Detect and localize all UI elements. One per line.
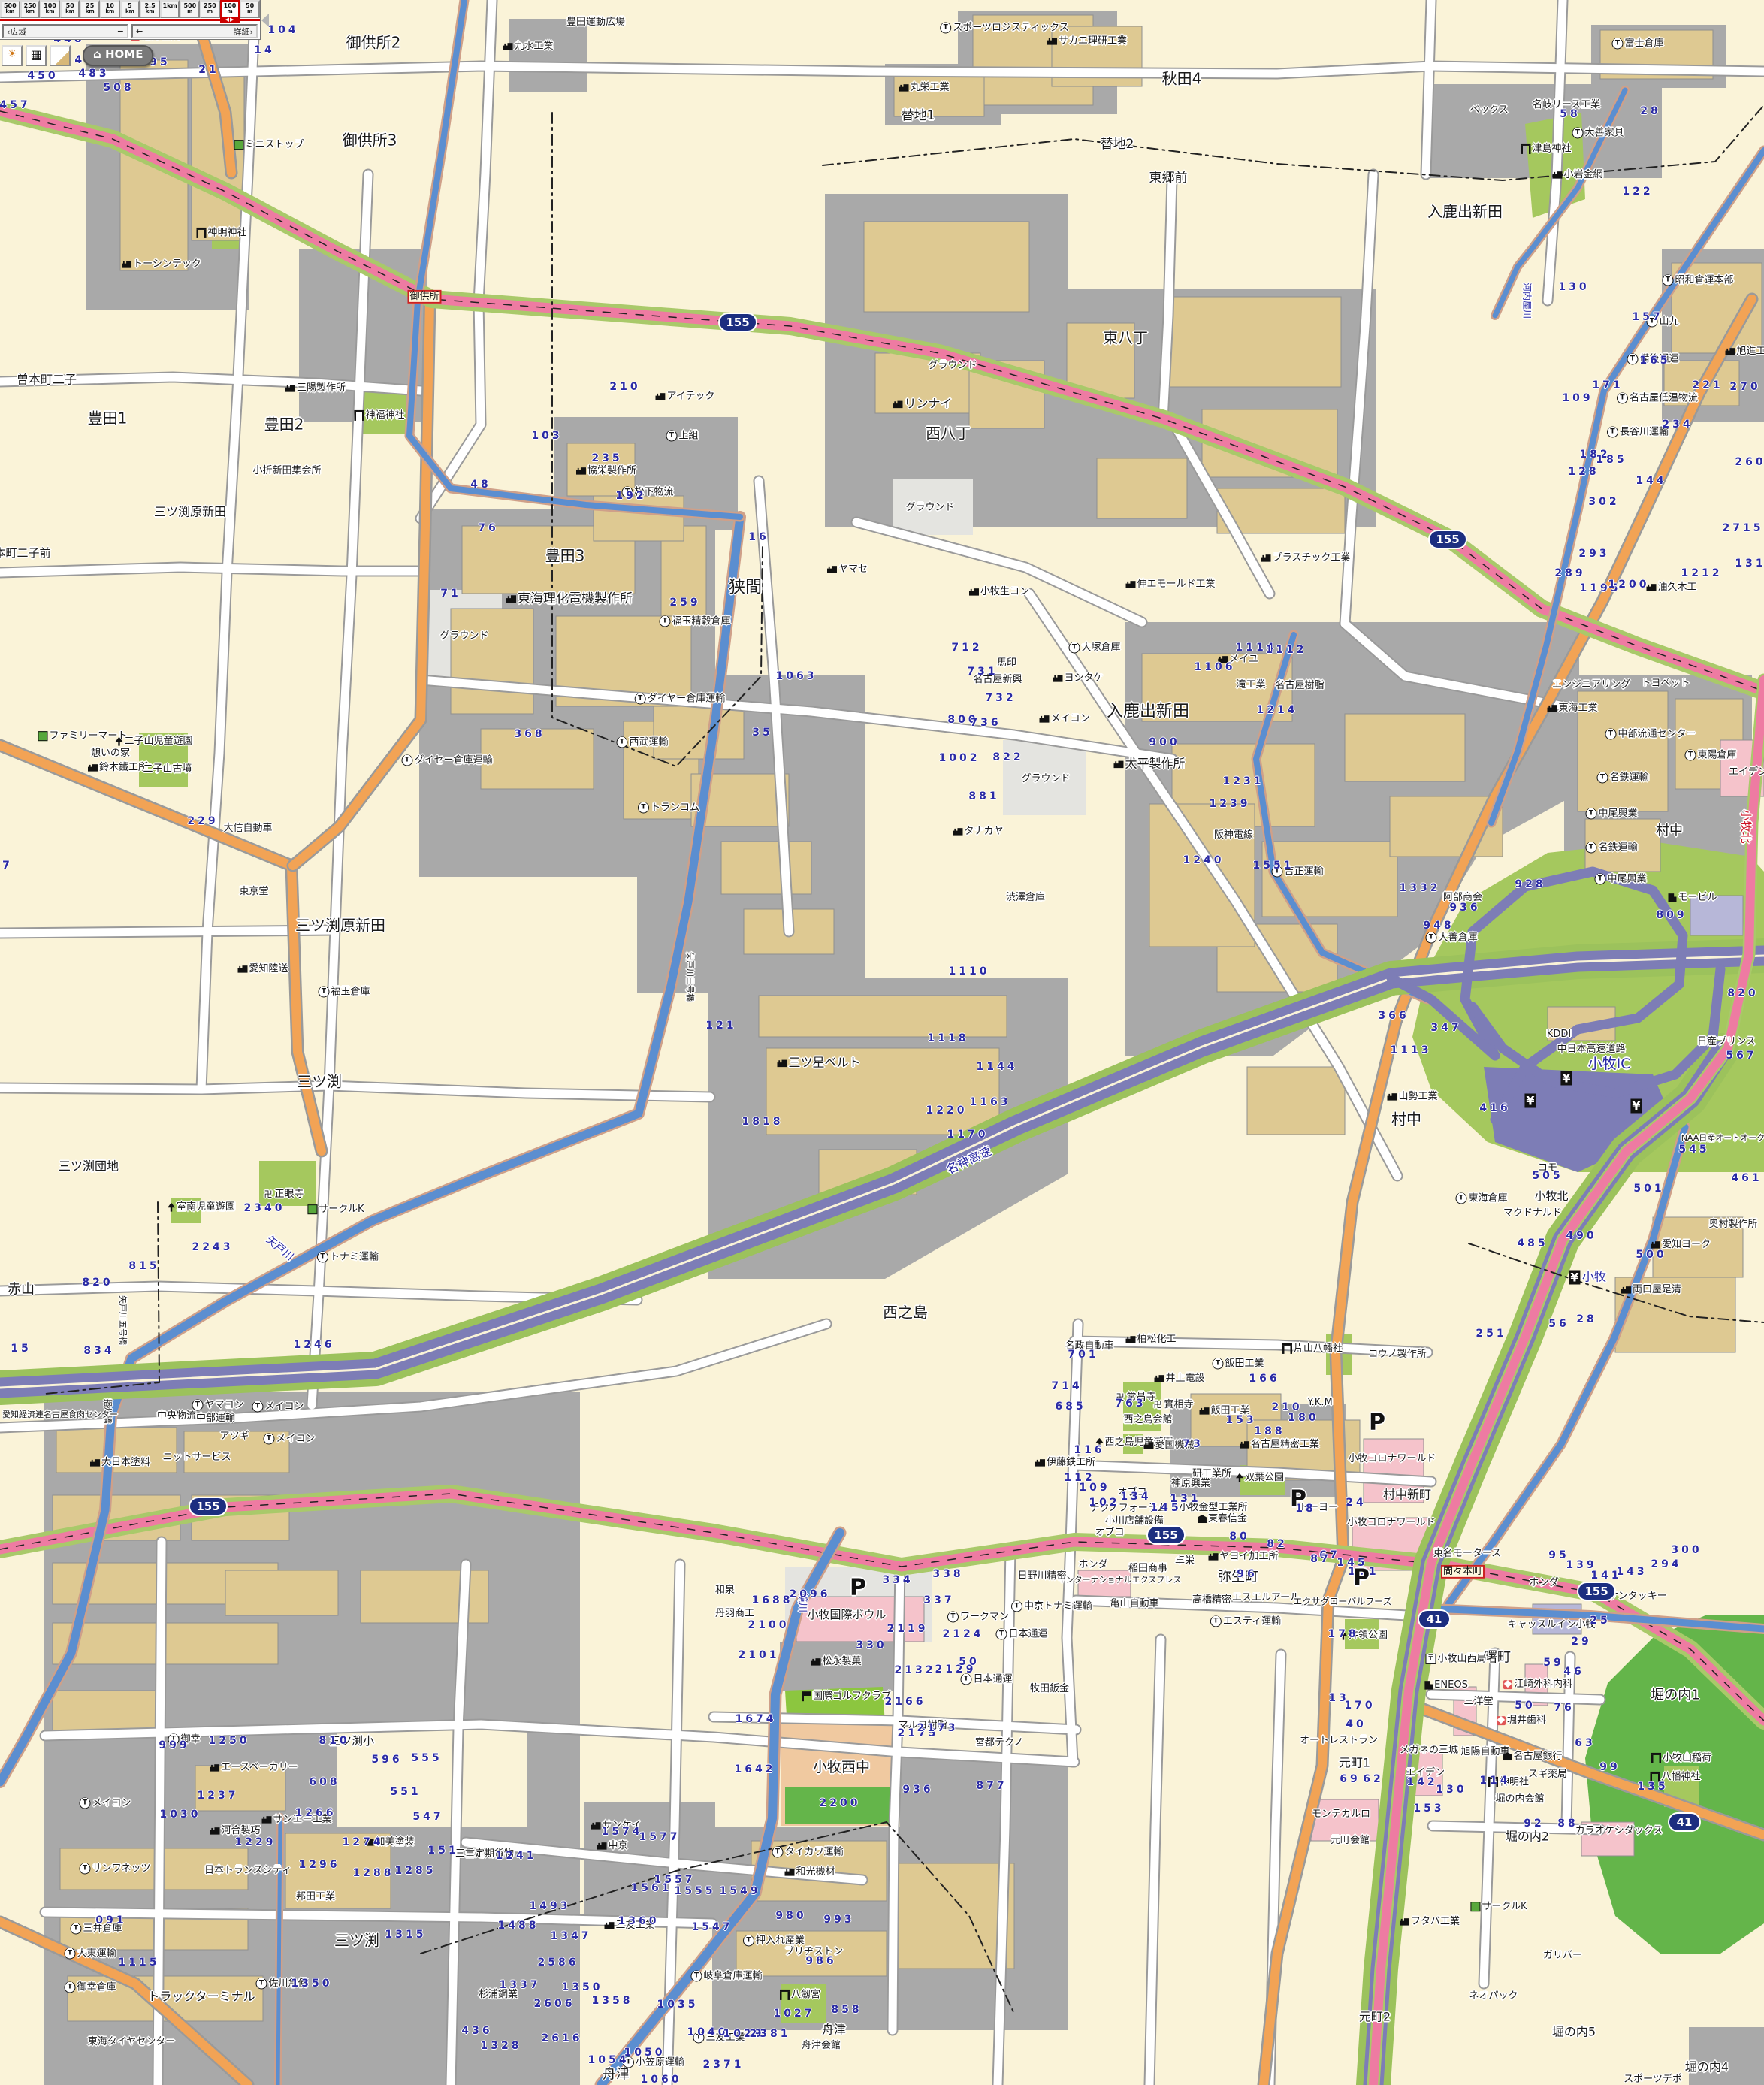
- lot-number: 59: [1543, 1657, 1563, 1669]
- map-label: 双葉公園: [1236, 1473, 1284, 1483]
- bk-icon: [1503, 1752, 1512, 1760]
- map-label: Tダイヤー倉庫運輸: [635, 693, 726, 705]
- lot-number: 1063: [776, 670, 817, 682]
- lot-number: 2586: [538, 1957, 579, 1969]
- t-icon: T: [659, 616, 670, 627]
- scale-button-50m[interactable]: 50m: [240, 0, 260, 18]
- lot-number: 234: [1662, 419, 1693, 431]
- h-icon: +: [1503, 1680, 1512, 1689]
- lot-number: 999: [159, 1739, 189, 1751]
- lot-number: 130: [1436, 1784, 1466, 1796]
- map-label: 村中新町: [1383, 1489, 1431, 1502]
- map-label: 奥村製作所: [1708, 1219, 1757, 1230]
- t-icon: T: [1596, 772, 1608, 784]
- map-label-layer: 御供所2御供所3豊田1豊田2豊田3狭間曽本町二子本町二子前西八丁東八丁入鹿出新田…: [0, 0, 1764, 2085]
- f-icon: [1125, 581, 1135, 588]
- f-icon: [210, 1764, 219, 1772]
- t-icon: T: [64, 1948, 75, 1960]
- scale-button-250km[interactable]: 250km: [20, 0, 41, 18]
- map-label: T中尾興業: [1594, 874, 1646, 885]
- map-label: エースベーカリー: [210, 1763, 298, 1773]
- lot-number: 881: [968, 790, 999, 802]
- m-icon: 卍: [1153, 1401, 1162, 1410]
- map-label: 大日本塗料: [90, 1458, 150, 1468]
- lot-number: 416: [1479, 1102, 1510, 1114]
- lot-number: 188: [1254, 1425, 1285, 1437]
- tollgate-mark: ¥: [1560, 1071, 1572, 1086]
- map-label: 入鹿出新田: [1107, 703, 1189, 720]
- lot-number: 1296: [299, 1859, 340, 1871]
- map-label: NAA日産オートオークション: [1681, 1134, 1764, 1143]
- lot-number: 986: [805, 1955, 836, 1967]
- cv-icon: [307, 1204, 317, 1214]
- lot-number: 1112: [1266, 644, 1307, 656]
- lot-number: 14: [254, 44, 274, 56]
- map-label: 小牧北: [1739, 809, 1751, 843]
- scale-button-5km[interactable]: 5km: [120, 0, 140, 18]
- lot-number: 1163: [970, 1096, 1011, 1108]
- map-label: 入鹿出新田: [1427, 204, 1503, 220]
- lot-number: 130: [1558, 281, 1589, 293]
- map-label: エンジニアリング: [1552, 680, 1630, 690]
- map-label: 堀の内4: [1685, 2062, 1729, 2074]
- map-label: エクサグローバルフーズ: [1293, 1597, 1391, 1607]
- lot-number: 1688: [752, 1594, 793, 1606]
- map-label: T大塚倉庫: [1068, 642, 1120, 654]
- map-label: 三ツ渕原新田: [154, 506, 226, 519]
- map-label: +江崎外科内科: [1503, 1679, 1572, 1690]
- lot-number: 24: [1346, 1497, 1366, 1509]
- lot-number: 1110: [949, 965, 990, 978]
- map-label: スギ薬局: [1528, 1769, 1567, 1780]
- h-icon: +: [1497, 1716, 1506, 1725]
- t-icon: T: [1425, 932, 1436, 944]
- map-label: 狭間: [729, 579, 762, 596]
- lot-number: 153: [1225, 1414, 1256, 1426]
- lot-number: 95: [1548, 1549, 1569, 1561]
- lot-number: 73: [1183, 1438, 1203, 1450]
- map-label: 小牧生コン: [969, 587, 1029, 597]
- map-label: 河内屋川: [1522, 283, 1532, 319]
- lot-number: 151: [427, 1845, 458, 1857]
- lot-number: 103: [531, 430, 562, 442]
- lot-number: 29: [1571, 1636, 1591, 1648]
- m-icon: 卍: [264, 1190, 273, 1199]
- map-label: 国際ゴルフクラブ: [802, 1691, 891, 1702]
- map-label: 伸エモールド工業: [1125, 579, 1215, 590]
- lot-number: 501: [1633, 1183, 1664, 1195]
- lot-number: 461: [1731, 1172, 1762, 1184]
- lot-number: 300: [1671, 1544, 1702, 1556]
- t-icon: T: [690, 1971, 702, 1982]
- lot-number: 104: [267, 24, 298, 36]
- t-icon: T: [947, 1612, 959, 1623]
- s-icon: [196, 228, 206, 238]
- lot-number: 2371: [703, 2059, 745, 2071]
- map-label: 馬印: [997, 658, 1016, 669]
- f-icon: [604, 1922, 614, 1929]
- scale-button-100km[interactable]: 100km: [40, 0, 60, 18]
- lot-number: 13: [1328, 1692, 1349, 1704]
- map-label: 御供所2: [346, 35, 401, 51]
- scale-button-10km[interactable]: 10km: [100, 0, 120, 18]
- map-label: 油久木工: [1646, 582, 1696, 593]
- map-label: 憩いの家: [91, 748, 130, 759]
- lot-number: 302: [1588, 496, 1619, 508]
- scale-button-2.5km[interactable]: 2.5km: [140, 0, 160, 18]
- lot-number: 131: [1170, 1493, 1201, 1505]
- lot-number: 56: [1548, 1318, 1569, 1330]
- map-label: 小牧コロナワールド: [1347, 1518, 1435, 1528]
- f-icon: [1154, 1375, 1164, 1382]
- lot-number: 131: [1735, 558, 1764, 570]
- f-icon: [1400, 1918, 1409, 1926]
- map-label: エスエルアール: [1232, 1593, 1300, 1603]
- map-label: 三ツ星ベルト: [777, 1057, 860, 1070]
- lot-number: 153: [1413, 1802, 1444, 1815]
- map-label: アツギ: [219, 1431, 249, 1442]
- map-label: T東海倉庫: [1455, 1193, 1507, 1204]
- lot-number: 545: [1678, 1144, 1709, 1156]
- map-label: ENEOS: [1424, 1680, 1468, 1691]
- lot-number: 858: [831, 2004, 862, 2016]
- detail-bar[interactable]: ← 詳細›: [131, 24, 258, 38]
- lot-number: 270: [1729, 381, 1760, 393]
- t-icon: T: [401, 755, 412, 766]
- route-shield-155: 155: [1577, 1582, 1616, 1601]
- route-shield-41: 41: [1418, 1609, 1451, 1629]
- zoom-in-arrow[interactable]: ←: [136, 26, 143, 36]
- map-label: ヤマセ: [827, 564, 868, 575]
- map-label: 愛知陸送: [237, 964, 288, 975]
- map-label: コウノ製作所: [1368, 1349, 1426, 1360]
- lot-number: 1241: [496, 1850, 537, 1862]
- lot-number: 50: [959, 1656, 979, 1668]
- pk-icon: [115, 737, 122, 746]
- map-label: T中尾興業: [1585, 808, 1637, 820]
- map-label: ホンダ: [1078, 1560, 1107, 1570]
- map-label: オートレストラン: [1300, 1736, 1378, 1746]
- panel-collapse-arrow[interactable]: [261, 14, 269, 27]
- lot-number: 1250: [209, 1735, 250, 1747]
- map-label: トーシンテック: [122, 259, 201, 270]
- lot-number: 596: [371, 1754, 402, 1766]
- scale-button-1km[interactable]: 1km: [160, 0, 180, 18]
- map-label: 神福神社: [354, 410, 404, 421]
- lot-number: 2124: [943, 1628, 984, 1640]
- map-label: 神明神社: [196, 228, 246, 238]
- lot-number: 1350: [562, 1981, 603, 1993]
- map-label: 舟津会館: [802, 2041, 841, 2051]
- lot-number: 763: [1115, 1398, 1146, 1410]
- lot-number: 436: [461, 2025, 492, 2037]
- lot-number: 1229: [235, 1836, 276, 1848]
- route-shield-155: 155: [1428, 530, 1467, 549]
- lot-number: 1240: [1183, 854, 1225, 866]
- lot-number: 171: [1592, 379, 1623, 391]
- t-icon: T: [1605, 729, 1616, 740]
- lot-number: 210: [609, 381, 640, 393]
- map-label: 曽本町二子: [17, 374, 77, 387]
- f-icon: [1125, 1336, 1135, 1343]
- lot-number: 144: [1636, 475, 1666, 487]
- t-icon: T: [1627, 354, 1638, 365]
- map-label: 小牧国際ボウル: [807, 1609, 886, 1621]
- f-icon: [261, 1816, 271, 1824]
- lot-number: 1347: [551, 1930, 592, 1942]
- lot-number: 1555: [675, 1885, 716, 1897]
- lot-number: 1113: [1391, 1044, 1432, 1056]
- map-label: 元町1: [1339, 1757, 1370, 1770]
- qr-code-button[interactable]: ▦: [26, 45, 47, 66]
- t-icon: T: [1210, 1616, 1222, 1627]
- map-label: 〒小牧山西局: [1425, 1654, 1486, 1664]
- lot-number: 28: [1640, 105, 1660, 117]
- lot-number: 2381: [750, 2028, 791, 2040]
- zoom-out-minus[interactable]: −: [117, 26, 124, 36]
- f-icon: [1113, 760, 1123, 768]
- lot-number: 810: [319, 1735, 349, 1747]
- f-icon: [655, 393, 665, 400]
- map-label: 村中: [1656, 825, 1683, 839]
- map-label: Tヤマコン: [192, 1400, 243, 1411]
- lot-number: 368: [514, 728, 545, 740]
- overview-inset-button[interactable]: [50, 45, 71, 66]
- map-label: 元町会館: [1331, 1836, 1370, 1846]
- map-label: 東名モータース: [1433, 1549, 1501, 1559]
- lot-number: 091: [95, 1914, 126, 1926]
- lot-number: 1214: [1257, 704, 1298, 716]
- lot-number: 1239: [1210, 798, 1251, 810]
- lot-number: 192: [615, 490, 646, 502]
- t-icon: T: [1684, 750, 1696, 761]
- lot-number: 69: [1340, 1773, 1360, 1785]
- lot-number: 63: [1575, 1737, 1595, 1749]
- lot-number: 1488: [498, 1920, 539, 1932]
- map-label: ヤヨイ加工所: [1208, 1552, 1278, 1562]
- home-button[interactable]: ⌂ HOME: [83, 45, 153, 66]
- t-icon: T: [1611, 38, 1623, 50]
- lot-number: 259: [669, 597, 700, 609]
- map-label: 協栄製作所: [576, 466, 636, 476]
- lot-number: 1231: [1223, 775, 1264, 787]
- daylight-button[interactable]: ☀: [2, 45, 23, 66]
- t-icon: T: [1212, 1358, 1223, 1370]
- f-icon: [503, 43, 512, 50]
- scale-button-row: 500km250km100km50km25km10km5km2.5km1km50…: [0, 0, 260, 18]
- map-label: 東海タイヤセンター: [88, 2037, 176, 2047]
- map-label: カラオケシダックス: [1575, 1826, 1663, 1836]
- map-label: 堀の内2: [1506, 1831, 1549, 1844]
- map-label: 神原興業: [1171, 1479, 1210, 1489]
- scale-button-500km[interactable]: 500km: [0, 0, 20, 18]
- lot-number: 685: [1055, 1401, 1086, 1413]
- map-label: 小牧西中: [813, 1760, 870, 1775]
- lot-number: 2101: [739, 1649, 780, 1661]
- map-label: ケンタッキー: [1608, 1591, 1667, 1602]
- g-icon: [1668, 893, 1676, 902]
- f-icon: [210, 1827, 219, 1835]
- t-icon: T: [79, 1863, 90, 1875]
- map-label: 名神高速: [944, 1145, 993, 1177]
- map-label: 東八丁: [1103, 331, 1148, 346]
- lot-number: 16: [748, 531, 769, 543]
- map-label: 太平製作所: [1113, 758, 1185, 771]
- map-label: フタバ工業: [1400, 1917, 1460, 1927]
- scale-button-50km[interactable]: 50km: [60, 0, 80, 18]
- detail-label: 詳細›: [234, 26, 253, 38]
- t-icon: T: [255, 1978, 267, 1990]
- f-icon: [506, 595, 516, 603]
- lot-number: 2243: [192, 1241, 234, 1253]
- lot-number: 46: [1563, 1666, 1584, 1678]
- lot-number: 1358: [592, 1995, 633, 2007]
- lot-number: 76: [478, 522, 498, 534]
- f-icon: [1387, 1093, 1397, 1101]
- f-icon: [285, 385, 295, 392]
- cv-icon: [38, 731, 47, 741]
- sun-icon: ☀: [8, 48, 17, 60]
- map-label: Tサンワネッツ: [79, 1863, 150, 1875]
- scale-button-25km[interactable]: 25km: [80, 0, 100, 18]
- map-label: 二子山児童遊園: [115, 736, 192, 747]
- p-icon: 〒: [1425, 1654, 1436, 1664]
- map-label: インターナショナルエクスプレス: [1058, 1576, 1182, 1585]
- map-label: T大東運輸: [64, 1948, 116, 1960]
- map-label: +堀井歯科: [1497, 1715, 1546, 1726]
- f-icon: [591, 1822, 601, 1830]
- lot-number: 114: [1479, 1775, 1510, 1787]
- t-icon: T: [1455, 1193, 1466, 1204]
- map-label: 秋田4: [1162, 71, 1202, 87]
- map-label: 日本トランスシティ: [204, 1866, 291, 1876]
- f-icon: [1047, 38, 1057, 45]
- f-icon: [1552, 171, 1562, 179]
- map-label: 愛知経済連名古屋食肉センター: [2, 1410, 118, 1419]
- lot-number: 58: [1560, 108, 1580, 120]
- lot-number: 1547: [692, 1921, 733, 1933]
- map-label: 東春信金: [1198, 1514, 1247, 1524]
- map-label: サークルK: [307, 1204, 364, 1215]
- home-icon: ⌂: [93, 47, 101, 61]
- t-icon: T: [1662, 275, 1673, 286]
- scale-button-250m[interactable]: 250m: [200, 0, 220, 18]
- lot-number: 330: [856, 1639, 887, 1651]
- lot-number: 88: [1557, 1818, 1578, 1830]
- lot-number: 1350: [291, 1978, 333, 1990]
- map-label: 八劔宮: [780, 1990, 820, 2000]
- lot-number: 2096: [790, 1588, 831, 1600]
- f-icon: [1208, 1553, 1218, 1561]
- map-label: T御幸倉庫: [64, 1982, 116, 1993]
- lot-number: 900: [1149, 736, 1180, 748]
- map-viewport[interactable]: 御供所2御供所3豊田1豊田2豊田3狭間曽本町二子本町二子前西八丁東八丁入鹿出新田…: [0, 0, 1764, 2085]
- lot-number: 1027: [774, 2008, 815, 2020]
- lot-number: 338: [932, 1568, 963, 1580]
- map-label: Tメイコン: [263, 1434, 315, 1445]
- lot-number: 2200: [820, 1797, 861, 1809]
- map-label: 丸栄工業: [899, 83, 949, 93]
- scale-toolbar: 500km250km100km50km25km10km5km2.5km1km50…: [0, 0, 261, 40]
- map-label: ベックス: [1469, 105, 1509, 116]
- f-icon: [1143, 1442, 1153, 1449]
- lot-number: 820: [1727, 987, 1758, 999]
- map-label: Tタイカワ運輸: [772, 1847, 843, 1858]
- map-label: 井上電設: [1154, 1373, 1204, 1384]
- lot-number: 1332: [1400, 882, 1441, 894]
- wide-area-bar[interactable]: ‹広域 −: [2, 24, 128, 38]
- map-label: 滝工業: [1236, 680, 1265, 690]
- map-label: ガリバー: [1543, 1951, 1582, 1961]
- lot-number: 483: [78, 68, 109, 80]
- lot-number: 1115: [119, 1957, 160, 1969]
- lot-number: 555: [411, 1752, 442, 1764]
- map-label: 山勢工業: [1387, 1092, 1437, 1102]
- lot-number: 139: [1566, 1559, 1596, 1571]
- map-label: 三陽製作所: [285, 383, 346, 394]
- lot-number: 714: [1051, 1380, 1082, 1392]
- f-icon: [1261, 554, 1271, 562]
- lot-number: 1246: [294, 1339, 335, 1351]
- lot-number: 1315: [385, 1929, 427, 1941]
- map-label: キャッスルイン小牧: [1507, 1620, 1595, 1630]
- f-icon: [1725, 348, 1735, 355]
- map-label: 堀の内1: [1651, 1689, 1699, 1703]
- map-label: 旭進工業: [1725, 346, 1764, 357]
- map-label: 稲田商事: [1128, 1564, 1167, 1574]
- lot-number: 2616: [542, 2032, 583, 2044]
- f-icon: [576, 467, 586, 475]
- map-label: 中京: [597, 1841, 627, 1851]
- lot-number: 980: [775, 1910, 806, 1922]
- lot-number: 1040: [687, 2026, 729, 2038]
- route-shield-155: 155: [718, 313, 757, 332]
- lot-number: 2100: [748, 1619, 790, 1631]
- map-label: T上組: [666, 431, 698, 442]
- route-shield-155: 155: [1146, 1525, 1186, 1545]
- scale-button-100m[interactable]: 100m◀▶: [220, 0, 240, 18]
- t-icon: T: [1617, 393, 1628, 404]
- s-icon: [1651, 1753, 1661, 1763]
- scale-button-500m[interactable]: 500m: [180, 0, 200, 18]
- lot-number: 96: [1237, 1568, 1257, 1580]
- map-label: 曙町: [1484, 1651, 1511, 1666]
- map-label: サークルK: [1470, 1902, 1527, 1912]
- f-icon: [953, 828, 962, 836]
- map-label: 豊田1: [88, 411, 128, 427]
- lot-number: 809: [1656, 909, 1687, 921]
- s-icon: [1521, 144, 1530, 154]
- map-label: 名古屋精密工業: [1240, 1440, 1319, 1450]
- lot-number: 547: [412, 1811, 443, 1823]
- map-label: 大信自動車: [223, 823, 272, 834]
- t-icon: T: [79, 1798, 90, 1809]
- lot-number: 337: [923, 1594, 954, 1606]
- lot-number: 2132: [895, 1664, 936, 1676]
- lot-number: 185: [1596, 454, 1627, 466]
- f-icon: [1039, 715, 1049, 723]
- lot-number: 450: [27, 70, 58, 82]
- map-label: 元町2: [1359, 2011, 1391, 2024]
- lot-number: 50: [1515, 1700, 1535, 1712]
- t-icon: T: [743, 1935, 754, 1947]
- lot-number: 15: [11, 1343, 31, 1355]
- g-icon: [1424, 1681, 1433, 1690]
- t-icon: T: [995, 1629, 1007, 1640]
- lot-number: 2173: [917, 1722, 959, 1734]
- f-icon: [827, 566, 837, 573]
- map-label: 杉浦鋼業: [479, 1990, 518, 2000]
